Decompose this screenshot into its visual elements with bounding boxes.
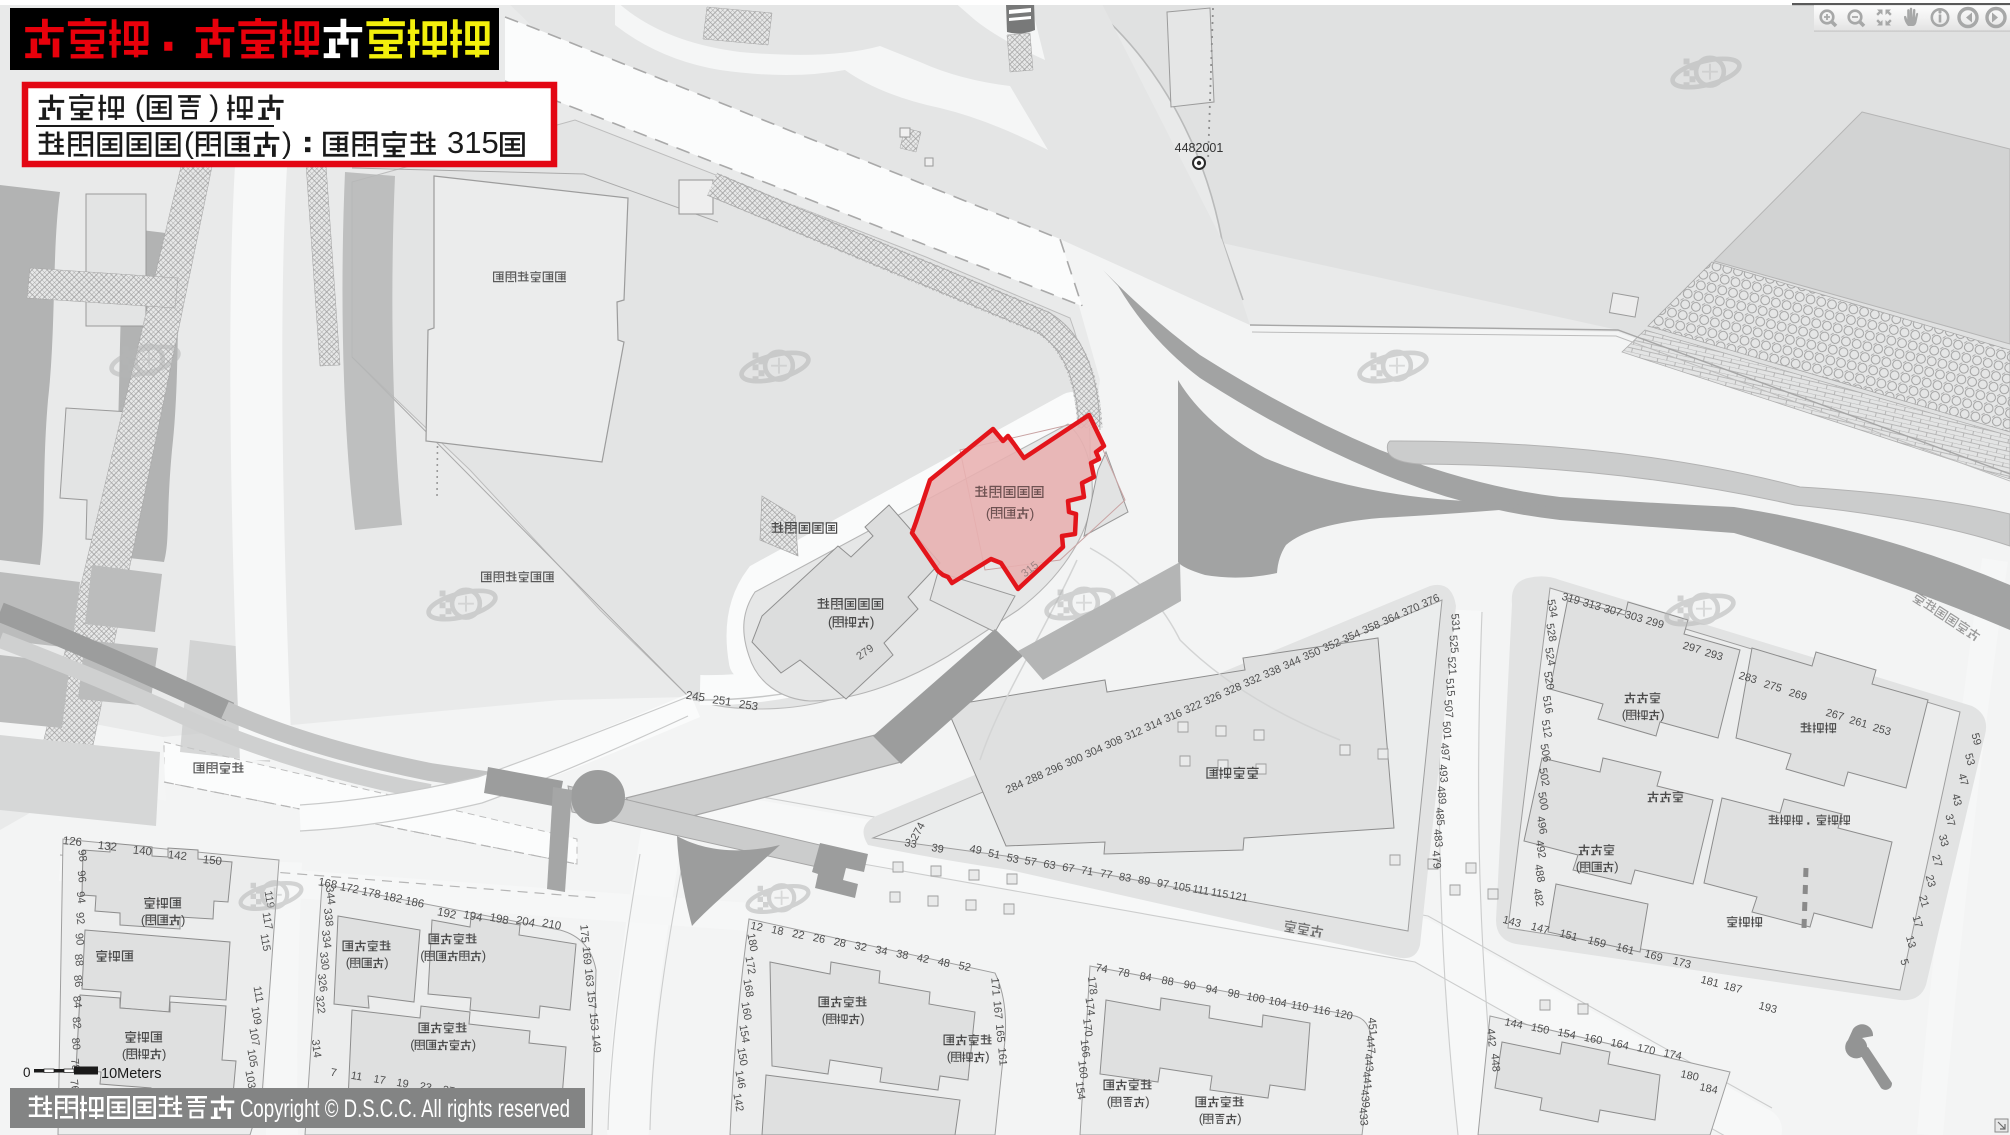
svg-text:90: 90 [72, 932, 85, 946]
svg-text:501: 501 [1440, 721, 1454, 740]
svg-text:): ) [482, 948, 486, 963]
svg-text:34: 34 [874, 944, 888, 958]
svg-text:97: 97 [1156, 877, 1170, 891]
svg-text:78: 78 [1116, 966, 1130, 980]
svg-text:71: 71 [1080, 865, 1094, 879]
svg-text:322: 322 [313, 995, 327, 1015]
svg-text:): ) [1660, 707, 1664, 722]
svg-text:53: 53 [1005, 852, 1019, 866]
svg-text:171: 171 [988, 977, 1002, 996]
svg-text:83: 83 [1118, 871, 1132, 885]
svg-text:80: 80 [69, 1037, 82, 1051]
svg-text:22: 22 [791, 928, 805, 942]
svg-text:(: ( [346, 955, 351, 970]
svg-text:(: ( [1622, 707, 1627, 722]
svg-text:154: 154 [1073, 1081, 1087, 1101]
svg-text:(: ( [947, 1049, 952, 1064]
svg-text:49: 49 [968, 843, 982, 857]
svg-text:441: 441 [1360, 1071, 1374, 1090]
svg-text:326: 326 [315, 973, 329, 993]
svg-text:167: 167 [991, 1000, 1005, 1019]
svg-text:(: ( [135, 90, 145, 123]
svg-text:132: 132 [97, 840, 117, 854]
svg-text:126: 126 [62, 835, 82, 849]
svg-text:33: 33 [903, 837, 917, 851]
svg-text:170: 170 [1080, 1018, 1094, 1038]
svg-text:497: 497 [1438, 742, 1452, 761]
svg-text:525: 525 [1447, 635, 1461, 654]
svg-text:18: 18 [770, 924, 784, 938]
svg-text:0: 0 [23, 1065, 31, 1080]
svg-text:(: ( [122, 1046, 127, 1061]
svg-text:330: 330 [317, 951, 331, 971]
svg-text:166: 166 [1078, 1039, 1092, 1059]
svg-text:57: 57 [1023, 855, 1037, 869]
svg-text:98: 98 [75, 849, 88, 863]
svg-text:175: 175 [577, 924, 591, 943]
svg-text:11: 11 [350, 1070, 363, 1084]
svg-text:483: 483 [1431, 829, 1445, 848]
svg-text:32: 32 [853, 940, 867, 954]
svg-text:): ) [209, 90, 219, 123]
svg-text:84: 84 [70, 995, 83, 1009]
svg-text:334: 334 [319, 929, 333, 949]
svg-text:149: 149 [589, 1034, 603, 1053]
svg-text:448: 448 [1488, 1053, 1502, 1072]
svg-text:(: ( [184, 127, 194, 160]
svg-text:94: 94 [74, 891, 87, 905]
svg-text:89: 89 [1137, 874, 1151, 888]
svg-text:17: 17 [372, 1073, 386, 1087]
svg-text:507: 507 [1441, 699, 1455, 718]
svg-text:94: 94 [1204, 983, 1218, 997]
svg-text:140: 140 [132, 845, 152, 859]
svg-text:443: 443 [1362, 1053, 1376, 1072]
svg-text:493: 493 [1436, 764, 1450, 783]
svg-text:157: 157 [584, 990, 598, 1009]
svg-text:338: 338 [321, 908, 335, 928]
svg-text:48: 48 [937, 956, 951, 970]
svg-text:142: 142 [167, 849, 187, 863]
svg-text:): ) [181, 912, 185, 927]
svg-text:451: 451 [1365, 1017, 1379, 1036]
svg-text:77: 77 [1099, 868, 1113, 882]
svg-text:(: ( [410, 1037, 415, 1052]
svg-text:314: 314 [309, 1039, 323, 1059]
svg-text:28: 28 [833, 936, 847, 950]
svg-text:): ) [1145, 1094, 1149, 1109]
svg-text:178: 178 [1085, 976, 1099, 996]
svg-text:51: 51 [987, 847, 1001, 861]
svg-text:150: 150 [202, 854, 222, 868]
svg-text:(: ( [822, 1011, 827, 1026]
svg-text:): ) [1237, 1111, 1241, 1126]
svg-text:88: 88 [1160, 974, 1174, 988]
svg-text:): ) [1614, 859, 1618, 874]
svg-text:(: ( [828, 614, 833, 630]
svg-text:): ) [870, 614, 875, 630]
svg-text:Copyright © D.S.C.C. All right: Copyright © D.S.C.C. All rights reserved [240, 1095, 570, 1123]
svg-text:439: 439 [1358, 1089, 1372, 1108]
svg-text:): ) [1030, 505, 1035, 521]
svg-text:98: 98 [1226, 987, 1240, 1001]
svg-text:(: ( [420, 948, 425, 963]
svg-text:344: 344 [323, 886, 337, 906]
svg-text:82: 82 [69, 1016, 82, 1030]
svg-text:161: 161 [995, 1047, 1009, 1066]
svg-text:): ) [860, 1011, 864, 1026]
svg-text:433: 433 [1356, 1107, 1370, 1126]
svg-text:74: 74 [1094, 962, 1108, 976]
svg-text:515: 515 [1443, 678, 1457, 697]
svg-text:67: 67 [1061, 861, 1075, 875]
svg-text:): ) [472, 1037, 476, 1052]
svg-text:): ) [384, 955, 388, 970]
svg-text:(: ( [986, 505, 991, 521]
svg-text:10Meters: 10Meters [101, 1066, 161, 1082]
svg-text:): ) [282, 127, 292, 160]
svg-text:169: 169 [580, 946, 594, 965]
svg-text:479: 479 [1429, 850, 1443, 869]
svg-text:): ) [162, 1046, 166, 1061]
svg-text:447: 447 [1363, 1035, 1377, 1054]
svg-text:(: ( [1199, 1111, 1204, 1126]
svg-text:84: 84 [1138, 970, 1152, 984]
svg-text:(: ( [141, 912, 146, 927]
svg-text:521: 521 [1445, 656, 1459, 675]
svg-text:39: 39 [930, 842, 944, 856]
svg-text:38: 38 [895, 948, 909, 962]
svg-text:96: 96 [75, 870, 88, 884]
svg-text:26: 26 [812, 932, 826, 946]
svg-text:92: 92 [73, 912, 86, 926]
svg-text:315: 315 [447, 125, 499, 160]
svg-text:4482001: 4482001 [1175, 141, 1224, 155]
svg-text:88: 88 [72, 953, 85, 967]
svg-text:153: 153 [587, 1012, 601, 1031]
svg-text:489: 489 [1434, 785, 1448, 804]
svg-text:52: 52 [957, 960, 971, 974]
svg-text:174: 174 [1083, 997, 1097, 1017]
svg-text:485: 485 [1433, 807, 1447, 826]
svg-text:442: 442 [1484, 1028, 1498, 1047]
svg-text:63: 63 [1042, 858, 1056, 872]
svg-text:42: 42 [916, 952, 930, 966]
svg-text:531: 531 [1448, 613, 1462, 632]
svg-text:165: 165 [993, 1024, 1007, 1043]
svg-text:): ) [985, 1049, 989, 1064]
svg-text:160: 160 [1075, 1060, 1089, 1080]
svg-text:(: ( [1107, 1094, 1112, 1109]
svg-text:86: 86 [71, 974, 84, 988]
svg-text:163: 163 [582, 968, 596, 987]
svg-text:(: ( [1576, 859, 1581, 874]
svg-text:90: 90 [1182, 979, 1196, 993]
